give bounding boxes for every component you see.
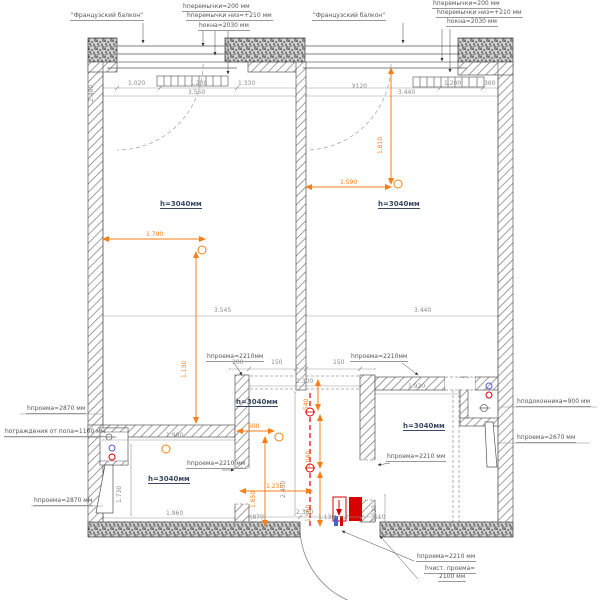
radiator-right xyxy=(413,77,484,87)
window-right xyxy=(303,46,467,68)
electric-panel-group xyxy=(333,497,362,526)
balcony-door-swing-right xyxy=(305,64,391,150)
cold-pipe-stub xyxy=(334,516,338,526)
room-label-top-right: h=3040мм xyxy=(378,200,420,209)
brick-walls xyxy=(88,62,513,522)
hot-water-riser-icon xyxy=(486,392,492,398)
hot-pipe-stub xyxy=(340,516,343,526)
room-label-top-left: h=3040мм xyxy=(160,200,202,209)
room-label-bottom-left: h=3040мм xyxy=(148,475,190,484)
window-left xyxy=(107,46,237,68)
entrance-door-swing xyxy=(300,522,380,600)
floorplan-drawing xyxy=(0,0,601,600)
radiator-left xyxy=(157,76,228,86)
room-label-middle: h=3040мм xyxy=(236,398,278,407)
panel-filled xyxy=(349,497,362,521)
niche-door-leaf xyxy=(485,422,497,467)
room-label-bottom-right: h=3040мм xyxy=(403,422,445,431)
floorplan-page: h=3040мм h=3040мм h=3040мм h=3040мм h=30… xyxy=(0,0,601,600)
sewer-riser-line xyxy=(305,393,315,528)
